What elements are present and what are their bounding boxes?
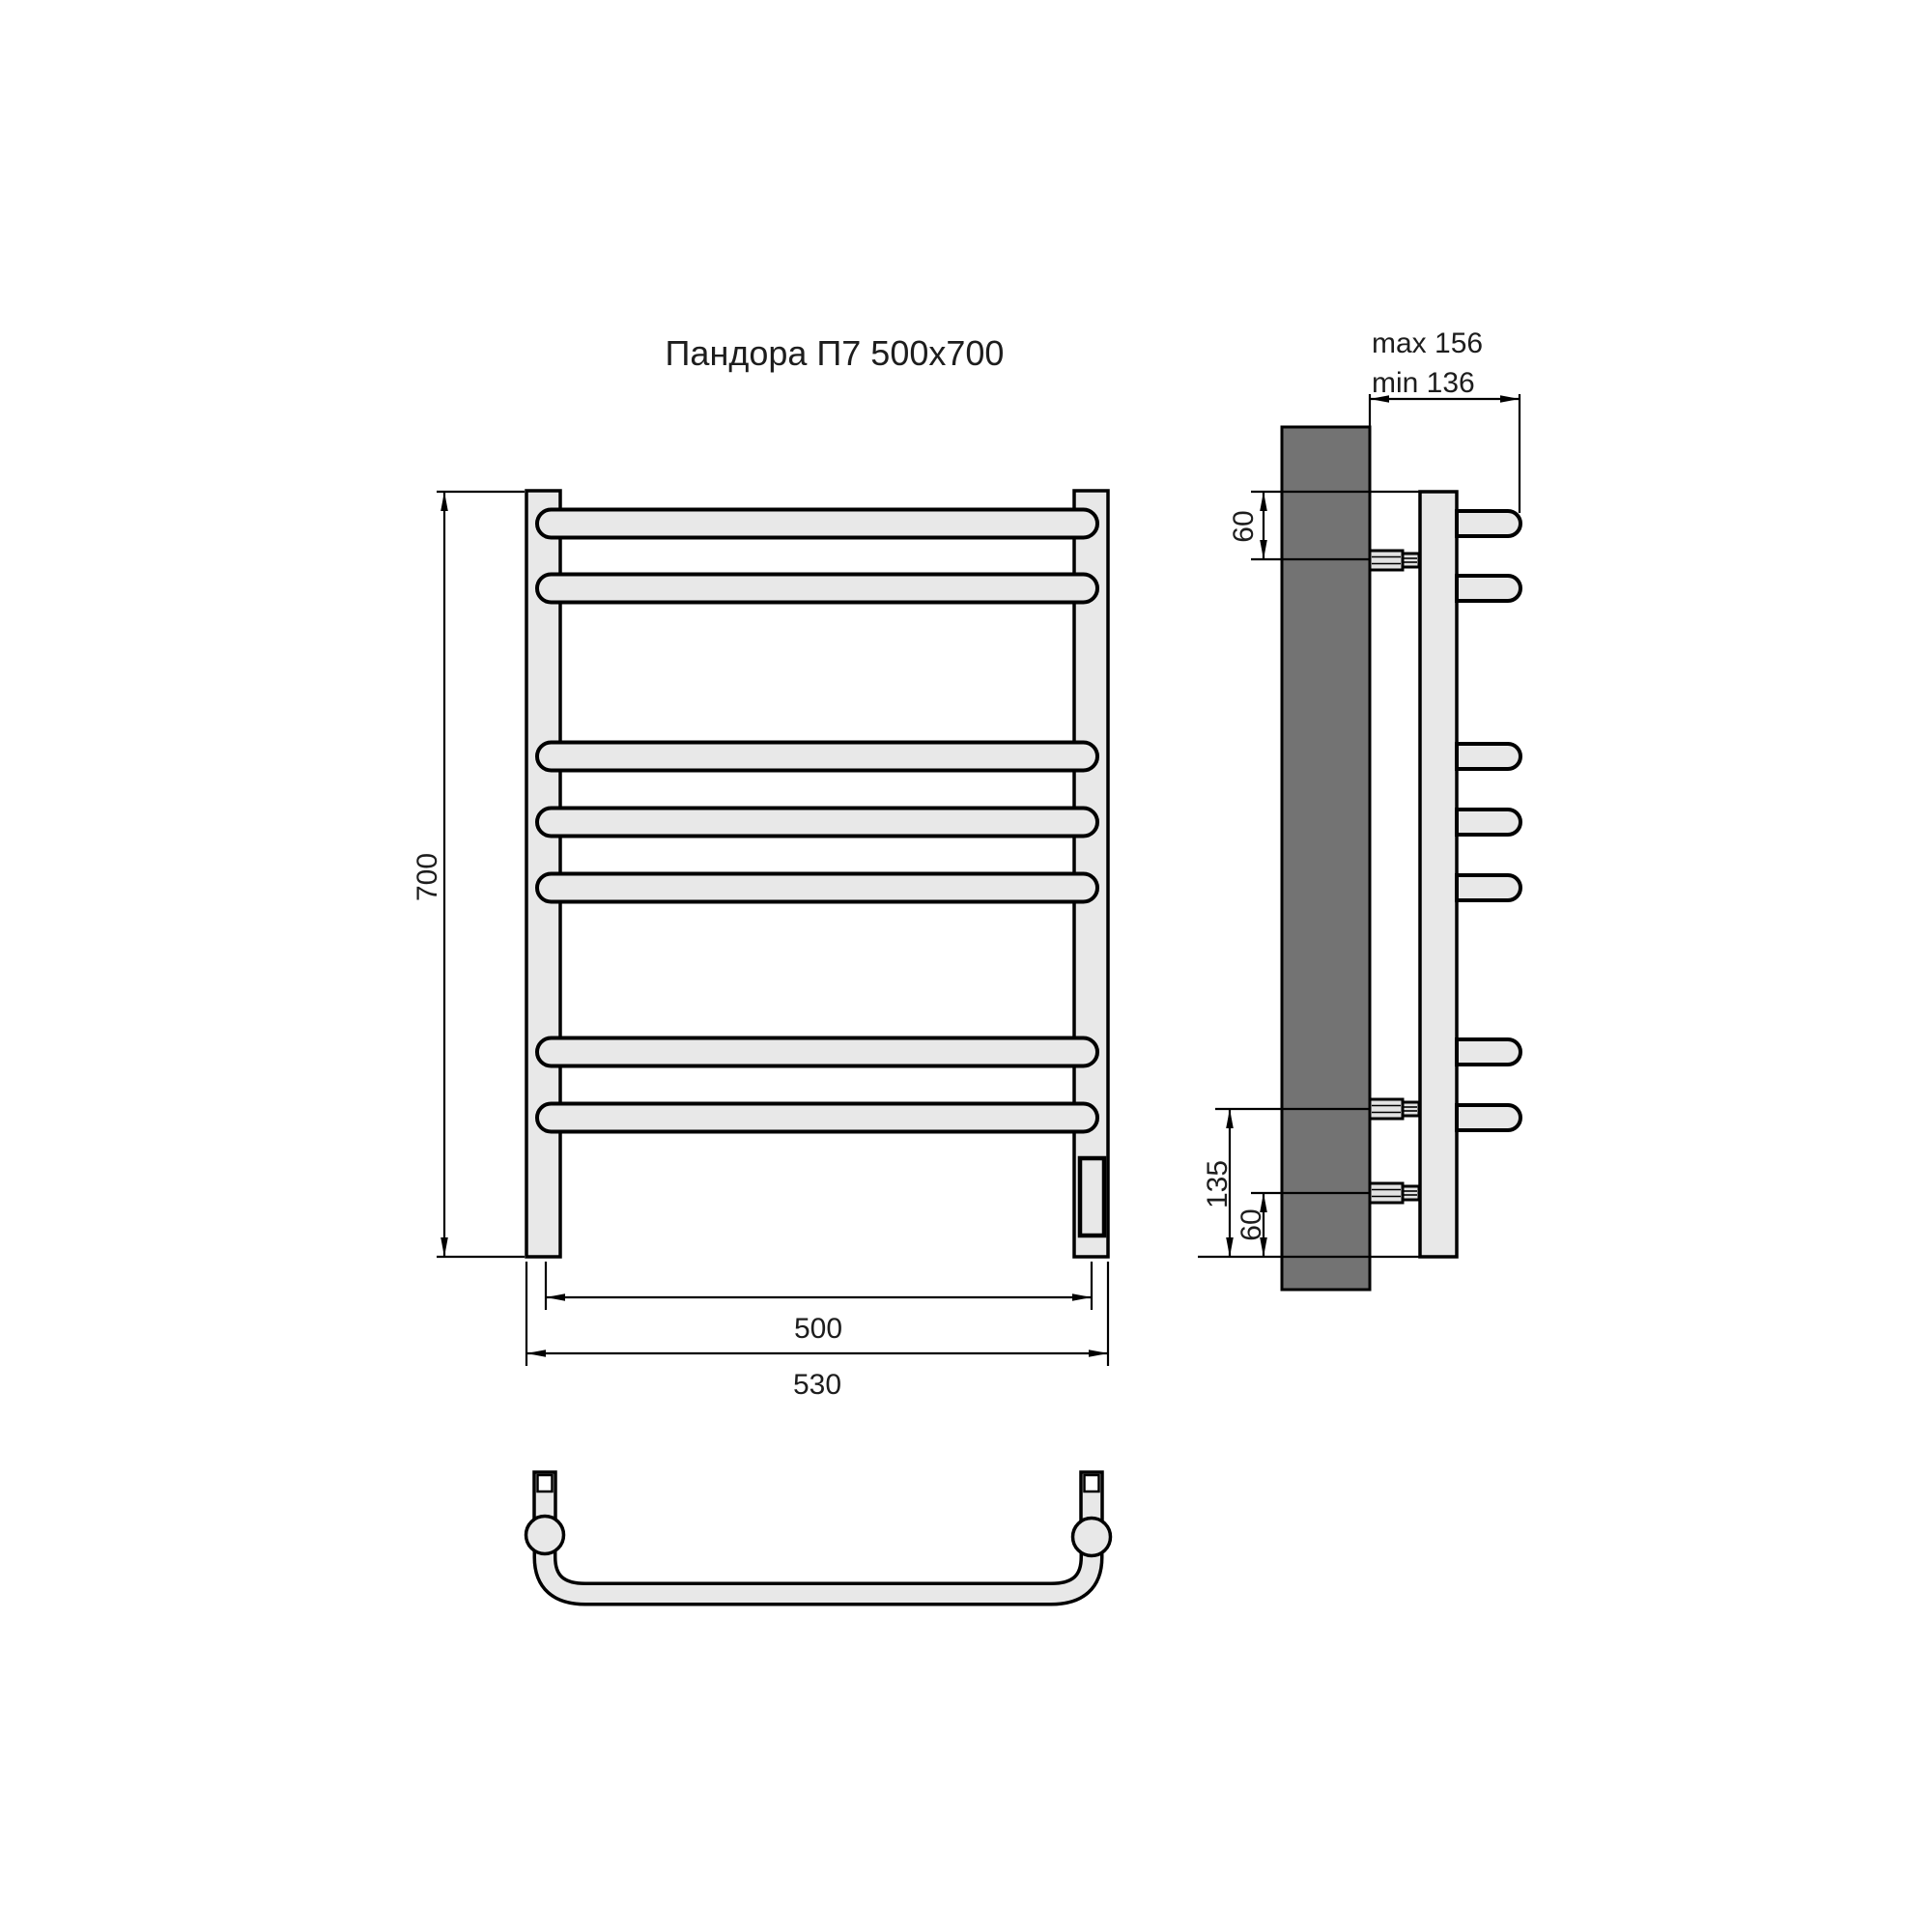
ball-joint <box>1073 1519 1111 1556</box>
rail-width-dim-label: 500 <box>794 1313 842 1345</box>
bottom-view <box>526 1472 1111 1594</box>
height-dim-label: 700 <box>412 853 443 901</box>
drawing-title: Пандора П7 500x700 <box>666 333 1005 373</box>
side-bar <box>1457 576 1520 601</box>
front-view: 700 500 530 <box>412 491 1108 1401</box>
top-offset-dim-label: 60 <box>1228 510 1260 542</box>
depth-min-dim-label: min 136 <box>1372 367 1475 399</box>
front-bar <box>537 809 1097 837</box>
overall-width-dim-label: 530 <box>793 1369 841 1401</box>
heater-element-box <box>1080 1158 1104 1236</box>
side-top-offset-dimension: 60 <box>1228 492 1264 559</box>
front-bar <box>537 510 1097 538</box>
ball-joint <box>526 1517 564 1554</box>
front-bar <box>537 1104 1097 1132</box>
side-bar <box>1457 1105 1520 1130</box>
side-bar <box>1457 810 1520 835</box>
drawing-page: Пандора П7 500x700 700 500 <box>0 0 1932 1932</box>
bottom-bar-tube <box>545 1531 1092 1594</box>
front-bar <box>537 1038 1097 1066</box>
wall-bracket <box>1370 1183 1419 1203</box>
technical-drawing: Пандора П7 500x700 700 500 <box>0 0 1932 1932</box>
front-rail-width-dimension: 500 <box>546 1262 1092 1345</box>
front-bar <box>537 575 1097 603</box>
side-depth-dimension: max 156 min 136 <box>1370 327 1520 399</box>
side-bracket-span-dimension: 135 <box>1202 1109 1234 1257</box>
front-bar <box>537 743 1097 771</box>
front-bar <box>537 874 1097 902</box>
side-bar <box>1457 744 1520 769</box>
side-bottom-offset-dimension: 60 <box>1236 1193 1267 1257</box>
bottom-offset-dim-label: 60 <box>1236 1208 1267 1240</box>
wall-bracket <box>1370 551 1419 570</box>
side-bar <box>1457 1039 1520 1065</box>
side-view: max 156 min 136 60 135 60 <box>1198 327 1520 1290</box>
front-height-dimension: 700 <box>412 492 525 1257</box>
side-rail <box>1420 492 1457 1257</box>
wall-bracket <box>1370 1099 1419 1119</box>
depth-max-dim-label: max 156 <box>1372 327 1483 359</box>
pipe-stub-opening <box>538 1475 553 1492</box>
bracket-span-dim-label: 135 <box>1202 1160 1234 1208</box>
side-bar <box>1457 875 1520 900</box>
side-bar <box>1457 511 1520 536</box>
pipe-stub-opening <box>1085 1475 1099 1492</box>
wall <box>1282 427 1370 1290</box>
